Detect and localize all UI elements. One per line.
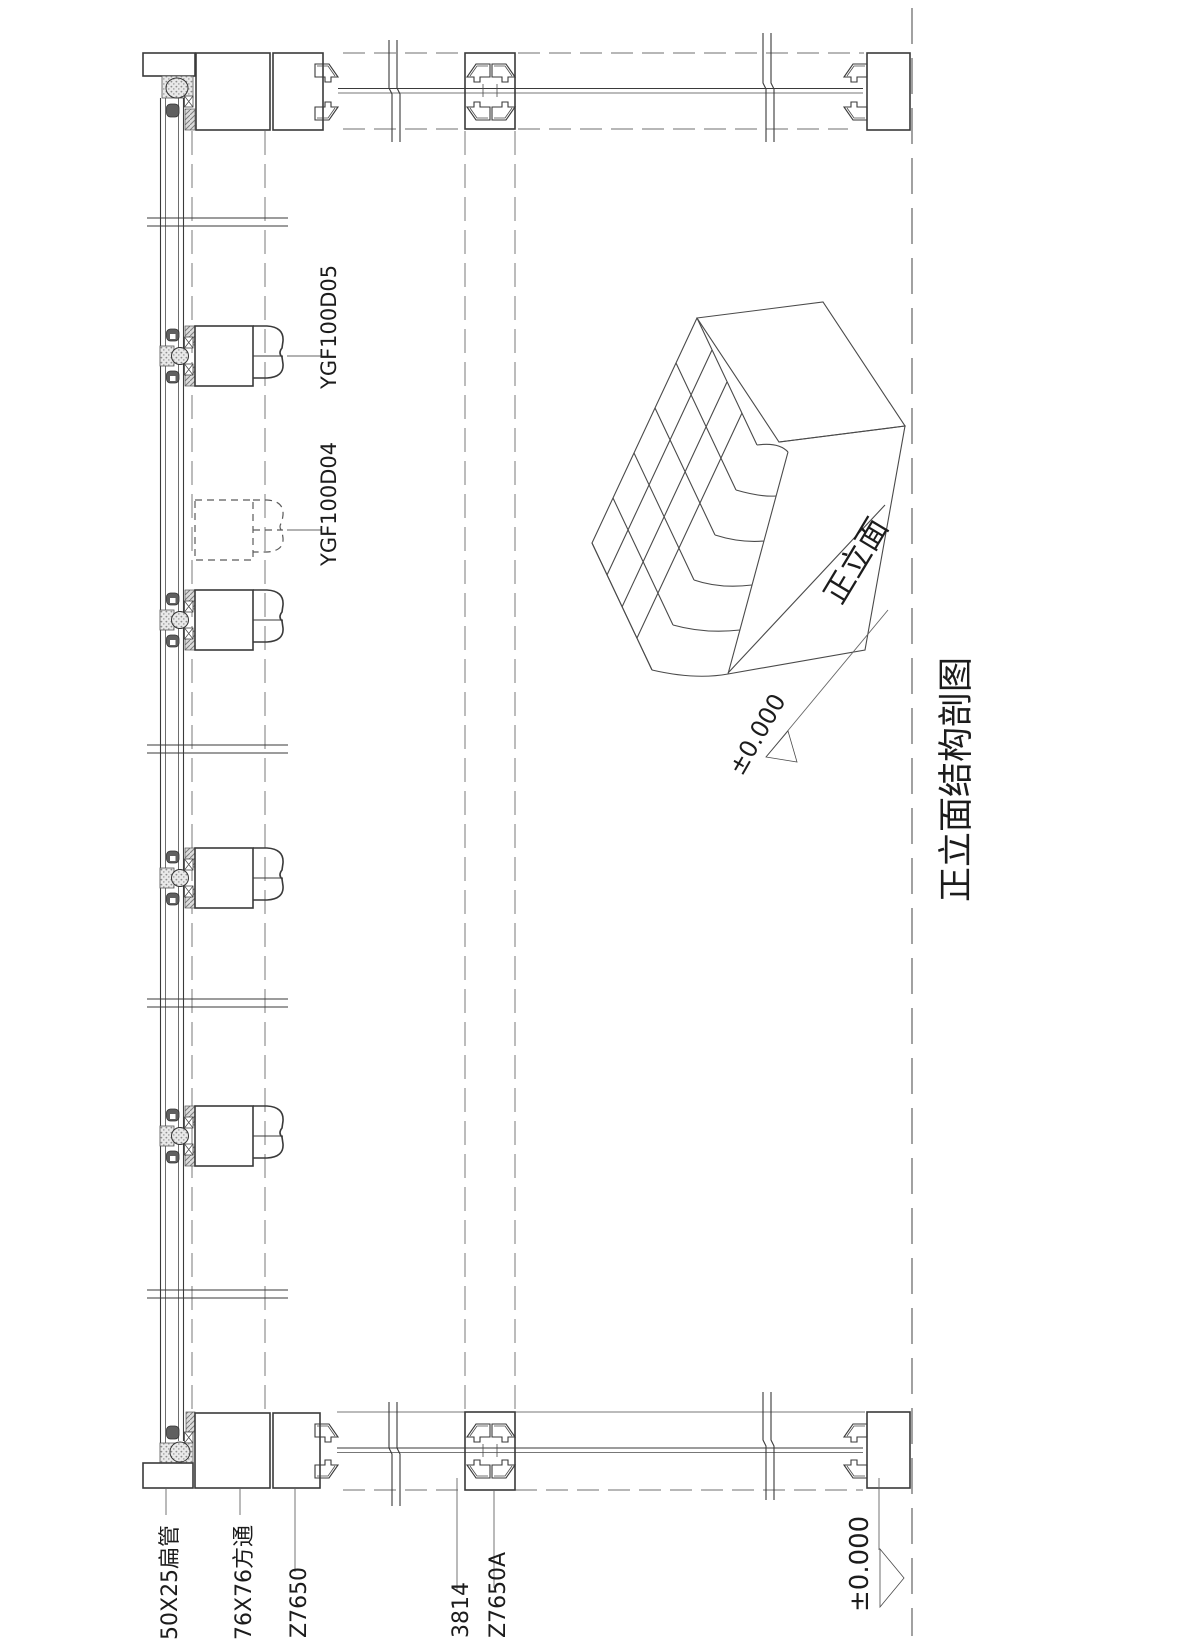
label-3814: 3814 bbox=[449, 1582, 474, 1638]
end-block-bottom bbox=[844, 1412, 910, 1488]
axis-lines bbox=[192, 8, 912, 1636]
top-jamb-row bbox=[143, 33, 910, 142]
transom-profile-3 bbox=[195, 848, 283, 908]
cube-face-label: 正立面 bbox=[817, 512, 896, 610]
cube-level-text: ±0.000 bbox=[723, 689, 792, 780]
elevation-section-drawing: ±0.000 正立面 ±0.000 YGF100D05 YGF100D04 50… bbox=[0, 0, 1200, 1642]
ghost-profile bbox=[195, 500, 283, 560]
label-ygf100d04: YGF100D04 bbox=[317, 442, 341, 567]
label-z7650a: Z7650A bbox=[486, 1552, 511, 1638]
cube-level-marker: ±0.000 bbox=[723, 610, 888, 780]
labels: YGF100D05 YGF100D04 50X25扁管 76X76方通 Z765… bbox=[158, 265, 511, 1640]
square-tube-section-top bbox=[196, 53, 270, 130]
z7650-section-bottom bbox=[273, 1413, 320, 1488]
bottom-sill-row bbox=[143, 1392, 910, 1506]
isometric-building-cube: ±0.000 正立面 bbox=[592, 302, 905, 780]
corner-cap-block bbox=[143, 53, 195, 76]
label-ygf100d05: YGF100D05 bbox=[317, 265, 341, 390]
break-marks-top bbox=[389, 33, 774, 142]
cube-top-face bbox=[697, 302, 905, 442]
transom-profile-1 bbox=[195, 326, 283, 386]
label-z7650: Z7650 bbox=[287, 1567, 312, 1638]
corner-bolt-bottom bbox=[170, 1442, 190, 1462]
end-block-top bbox=[844, 53, 910, 130]
flat-tube-section bbox=[143, 1463, 193, 1488]
label-square-tube: 76X76方通 bbox=[232, 1525, 257, 1640]
transom-profile-2 bbox=[195, 590, 283, 650]
mid-profile-bottom bbox=[465, 1412, 515, 1490]
ground-level-text: ±0.000 bbox=[845, 1516, 875, 1612]
break-marks-bottom bbox=[389, 1392, 774, 1506]
square-tube-section-bottom bbox=[195, 1413, 270, 1488]
label-flat-tube: 50X25扁管 bbox=[158, 1525, 183, 1640]
ground-level-marker: ±0.000 bbox=[845, 1478, 904, 1612]
mid-profile-top bbox=[465, 53, 515, 129]
corner-bolt bbox=[166, 78, 188, 98]
transom-profile-4 bbox=[195, 1106, 283, 1166]
drawing-title: 正立面结构剖图 bbox=[937, 657, 977, 902]
left-mullion-strip bbox=[147, 96, 288, 1444]
